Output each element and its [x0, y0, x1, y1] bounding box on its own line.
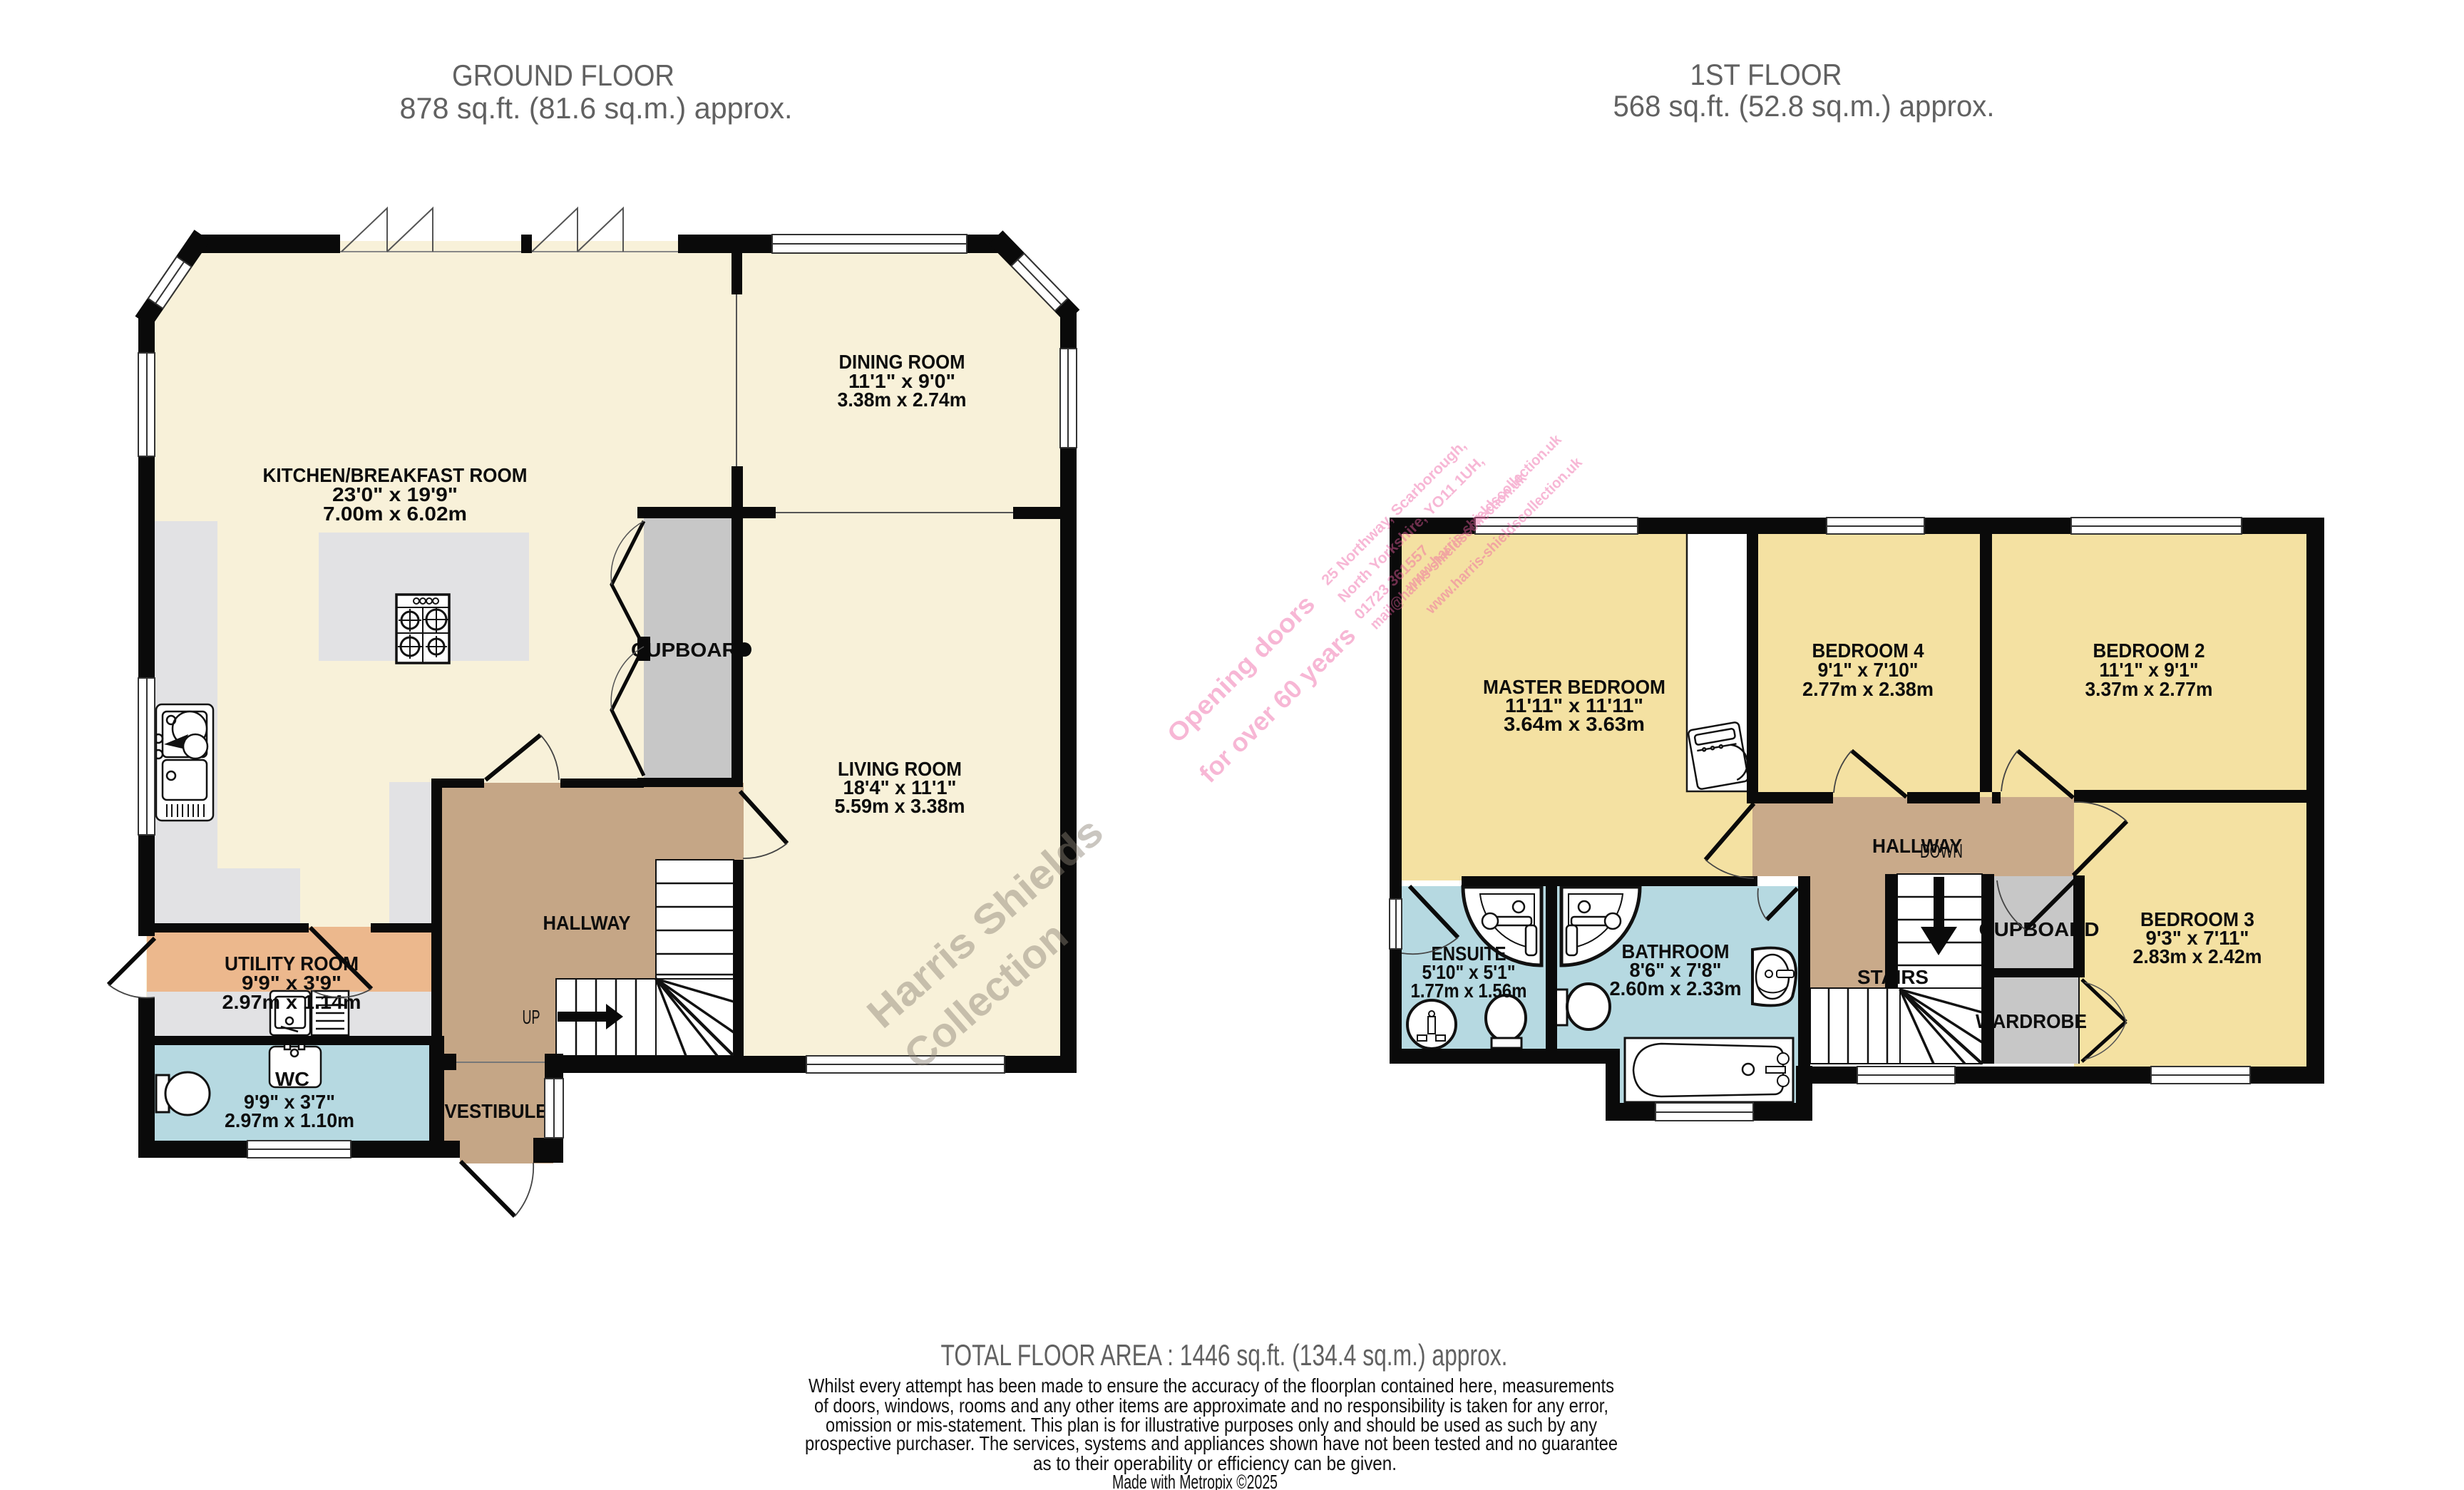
svg-text:568 sq.ft. (52.8 sq.m.) approx: 568 sq.ft. (52.8 sq.m.) approx.	[1613, 89, 1995, 123]
svg-text:3.64m x 3.63m: 3.64m x 3.63m	[1504, 713, 1645, 735]
svg-text:1.77m x 1.56m: 1.77m x 1.56m	[1411, 980, 1527, 1002]
svg-text:2.83m x 2.42m: 2.83m x 2.42m	[2133, 945, 2262, 967]
svg-text:VESTIBULE: VESTIBULE	[445, 1100, 548, 1122]
svg-text:3.37m x 2.77m: 3.37m x 2.77m	[2085, 678, 2213, 700]
svg-text:UP: UP	[523, 1006, 540, 1028]
svg-text:Made with Metropix ©2025: Made with Metropix ©2025	[1112, 1471, 1278, 1490]
svg-text:Whilst every attempt has been: Whilst every attempt has been made to en…	[808, 1375, 1614, 1397]
svg-text:7.00m x 6.02m: 7.00m x 6.02m	[323, 503, 467, 525]
svg-text:1ST FLOOR: 1ST FLOOR	[1690, 58, 1842, 91]
svg-text:2.60m x 2.33m: 2.60m x 2.33m	[1610, 977, 1742, 1000]
svg-text:DOWN: DOWN	[1920, 840, 1963, 862]
svg-text:3.38m x 2.74m: 3.38m x 2.74m	[838, 389, 967, 411]
svg-text:prospective purchaser. The ser: prospective purchaser. The services, sys…	[805, 1432, 1618, 1454]
svg-text:GROUND FLOOR: GROUND FLOOR	[452, 58, 674, 92]
svg-text:2.77m x 2.38m: 2.77m x 2.38m	[1802, 678, 1934, 700]
svg-text:2.97m x 1.10m: 2.97m x 1.10m	[225, 1109, 354, 1131]
svg-text:5.59m x 3.38m: 5.59m x 3.38m	[835, 795, 965, 817]
svg-text:2.97m x 1.14m: 2.97m x 1.14m	[222, 991, 361, 1013]
svg-text:HALLWAY: HALLWAY	[543, 912, 631, 934]
svg-text:878 sq.ft. (81.6 sq.m.) approx: 878 sq.ft. (81.6 sq.m.) approx.	[400, 91, 793, 125]
svg-text:WC: WC	[275, 1068, 309, 1090]
svg-text:TOTAL FLOOR AREA : 1446 sq.ft.: TOTAL FLOOR AREA : 1446 sq.ft. (134.4 sq…	[941, 1338, 1508, 1372]
